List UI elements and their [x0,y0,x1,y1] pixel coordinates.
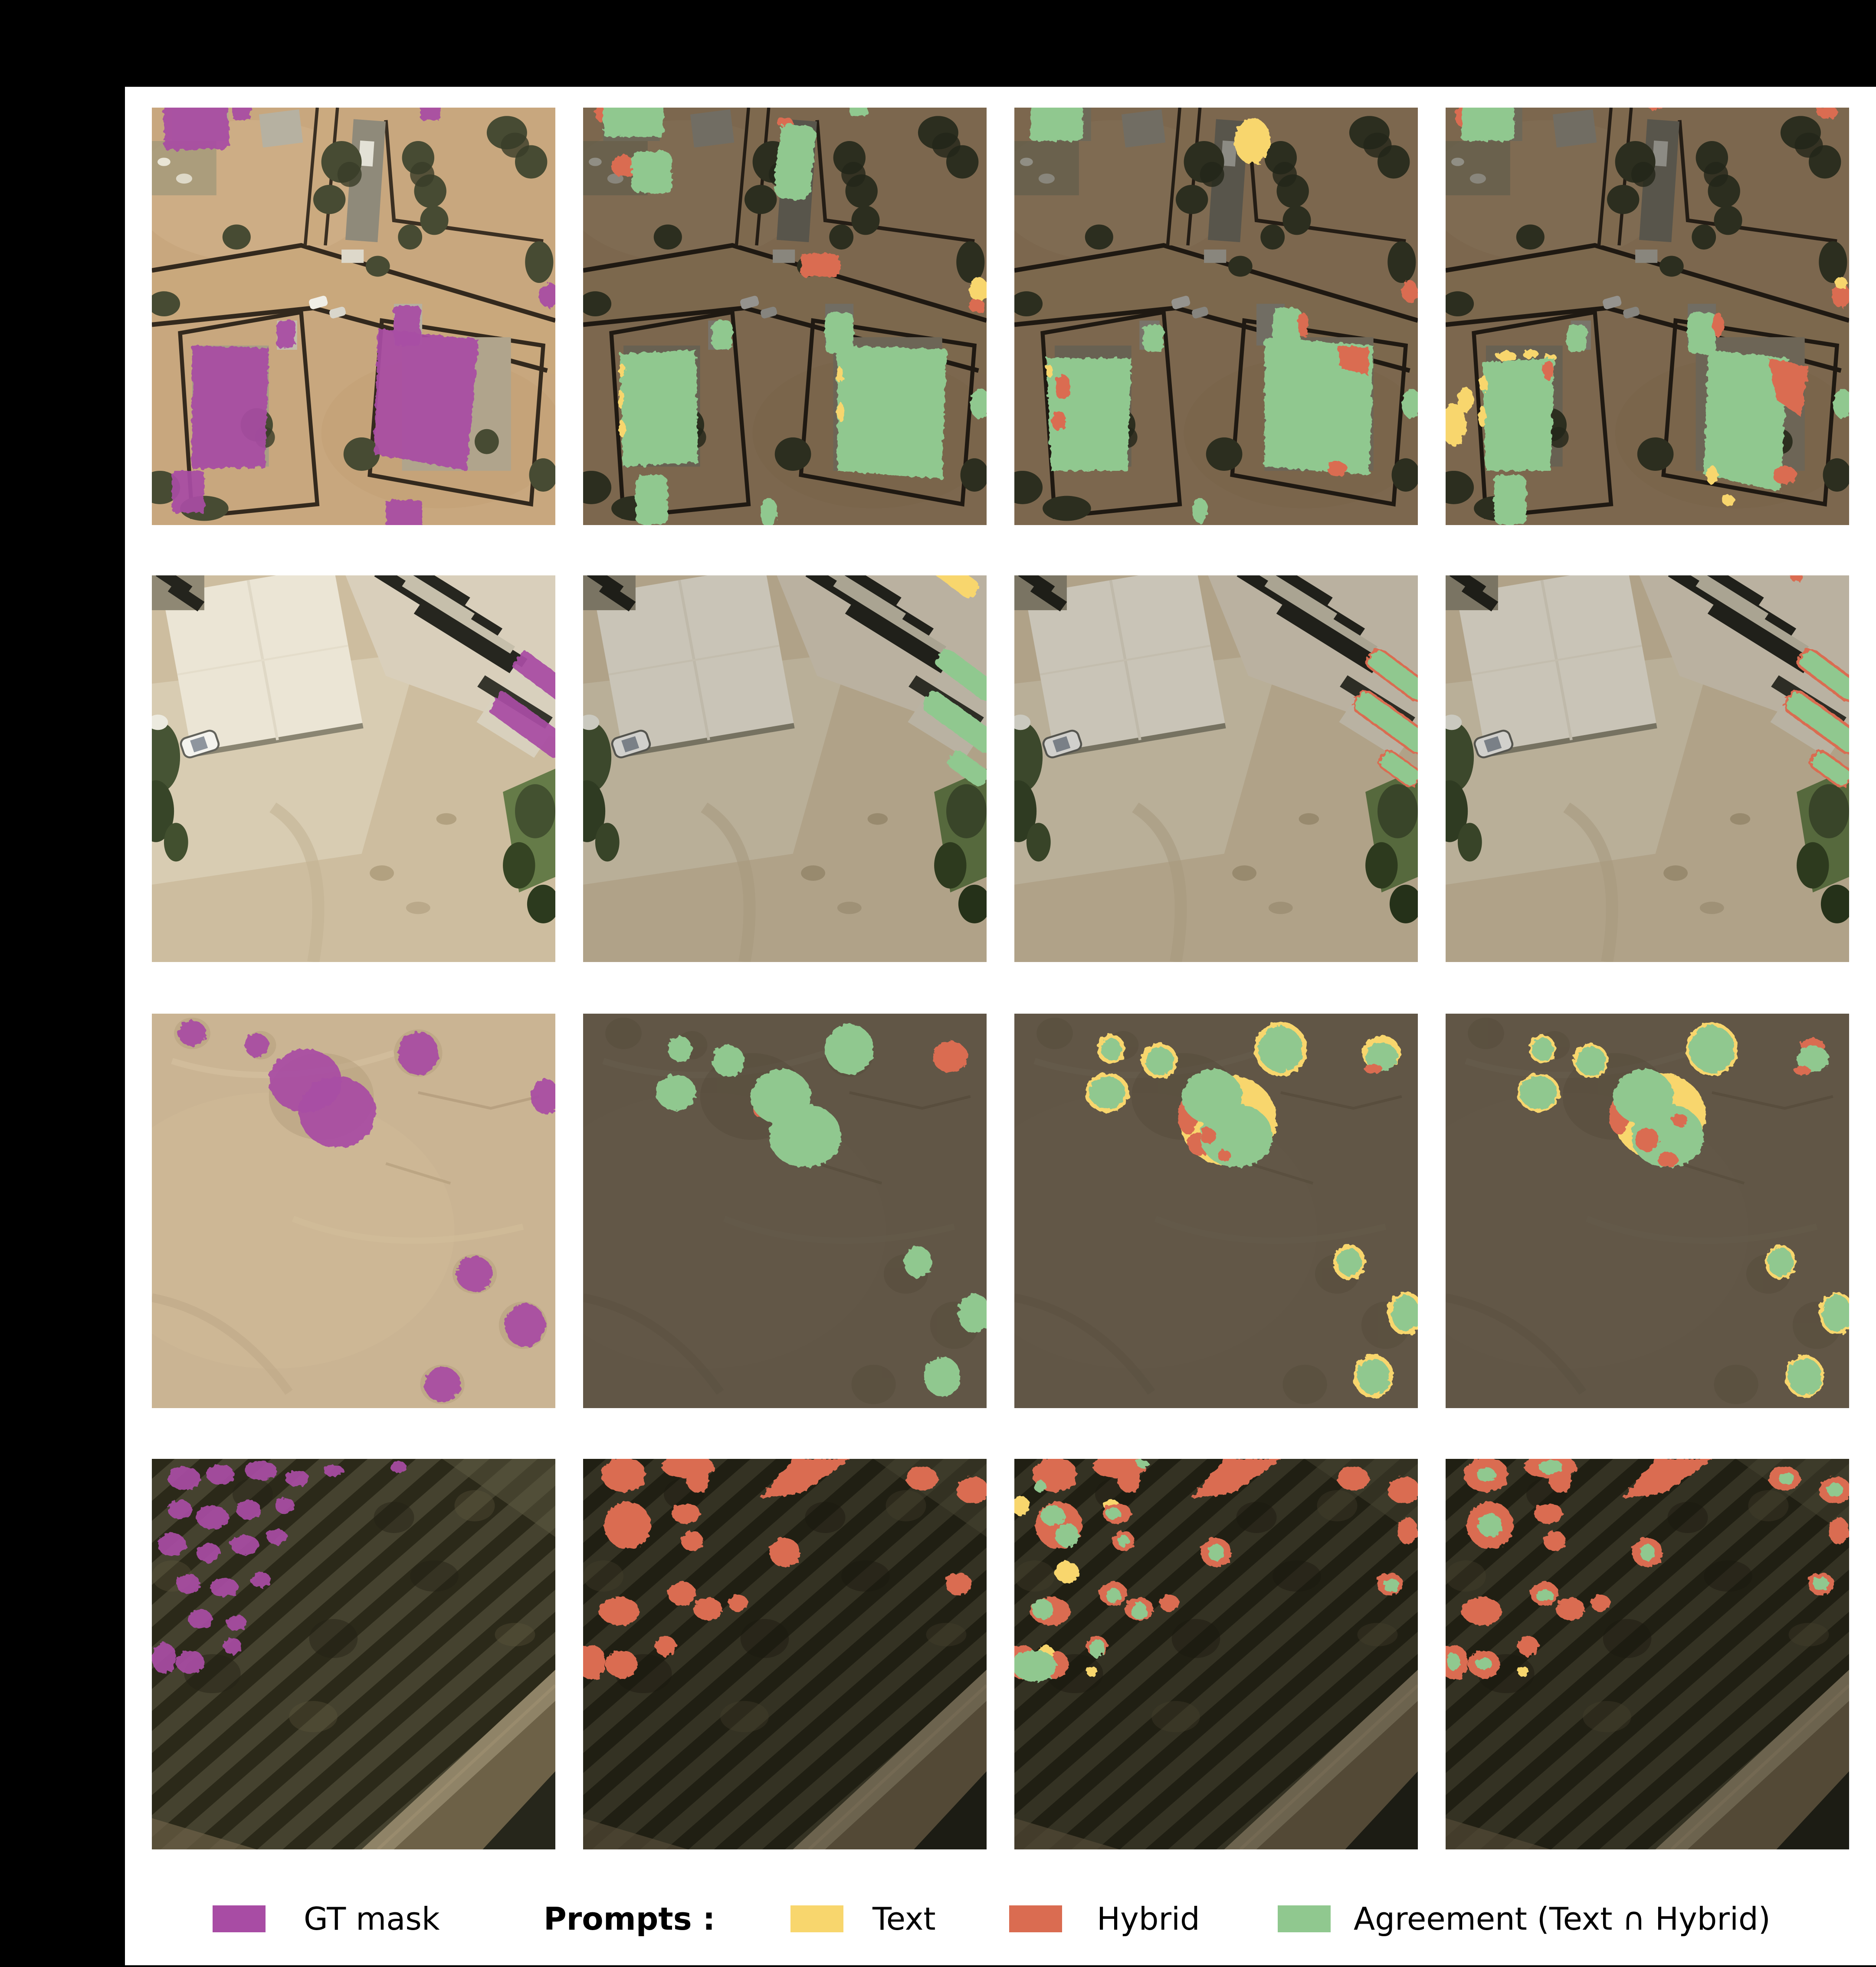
legend-label-text: Text [872,1902,936,1935]
satellite-panel-row2-prediction-3 [1446,575,1849,962]
legend-swatch-gt-mask [213,1905,266,1932]
satellite-panel-row4-gt-mask [152,1459,555,1849]
legend-label-hybrid: Hybrid [1097,1902,1200,1935]
legend-label-gt-mask: GT mask [304,1902,440,1935]
satellite-panel-row2-prediction-2 [1014,575,1418,962]
satellite-panel-row4-prediction-2 [1014,1459,1418,1849]
figure-canvas: { "canvas": {"background": "#000000", "s… [0,0,1876,1967]
satellite-panel-row3-gt-mask [152,1014,555,1408]
satellite-panel-row4-prediction-1 [583,1459,987,1849]
satellite-panel-row1-gt-mask [152,108,555,525]
legend-swatch-agreement [1278,1905,1331,1932]
satellite-panel-row2-gt-mask [152,575,555,962]
legend-label-prompts: Prompts : [544,1902,715,1935]
figure-sheet: GT mask Prompts : Text Hybrid Agreement … [125,87,1876,1965]
satellite-panel-row2-prediction-1 [583,575,987,962]
satellite-panel-row3-prediction-3 [1446,1014,1849,1408]
satellite-panel-row4-prediction-3 [1446,1459,1849,1849]
satellite-panel-row1-prediction-1 [583,108,987,525]
satellite-panel-row3-prediction-2 [1014,1014,1418,1408]
legend-swatch-text [790,1905,843,1932]
legend-label-agreement: Agreement (Text ∩ Hybrid) [1354,1902,1771,1935]
legend-swatch-hybrid [1009,1905,1062,1932]
satellite-panel-row1-prediction-3 [1446,108,1849,525]
satellite-panel-row3-prediction-1 [583,1014,987,1408]
satellite-panel-row1-prediction-2 [1014,108,1418,525]
